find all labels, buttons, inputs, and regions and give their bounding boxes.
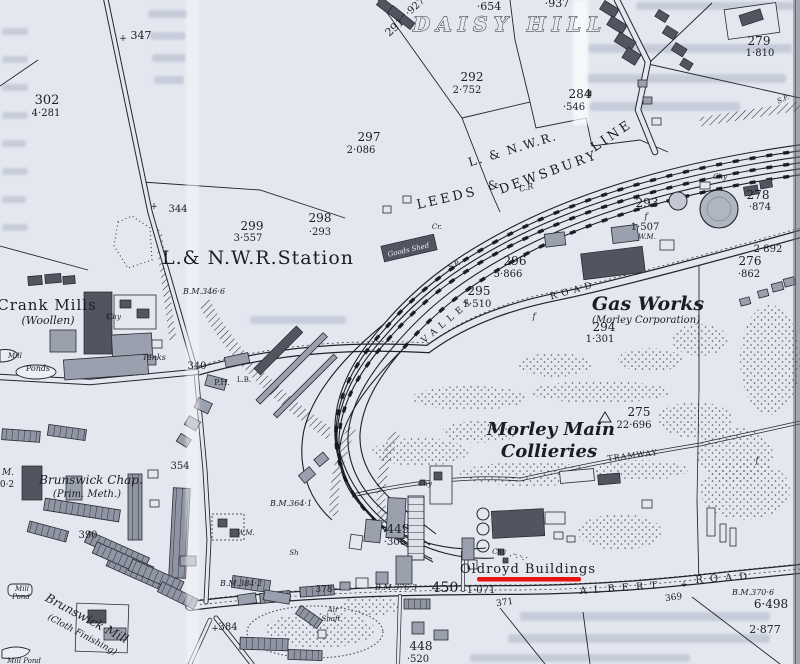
map-geometry bbox=[652, 118, 661, 125]
map-geometry bbox=[590, 102, 740, 111]
map-label: M. bbox=[1, 468, 14, 478]
map-geometry bbox=[560, 469, 595, 484]
map-geometry bbox=[642, 500, 652, 508]
map-label: 292 bbox=[461, 70, 484, 84]
map-label: Shaft bbox=[322, 615, 341, 623]
map-label: L.& N.W.R.Station bbox=[162, 247, 354, 269]
map-geometry bbox=[120, 300, 131, 308]
map-label: Collieries bbox=[501, 441, 597, 462]
map-geometry bbox=[318, 630, 326, 638]
map-label: Chy bbox=[492, 548, 507, 556]
map-geometry bbox=[404, 599, 430, 609]
map-geometry bbox=[408, 496, 424, 560]
map-geometry bbox=[383, 206, 391, 213]
map-geometry bbox=[240, 637, 288, 651]
map-label: ·546 bbox=[563, 102, 585, 113]
map-geometry bbox=[2, 168, 28, 175]
map-label: 1·301 bbox=[586, 334, 615, 345]
red-underline-annotation bbox=[477, 577, 581, 582]
map-label: ·520 bbox=[407, 654, 429, 664]
map-geometry bbox=[148, 470, 158, 478]
map-label: 22·696 bbox=[617, 420, 652, 431]
map-label: ·862 bbox=[738, 269, 760, 280]
map-label: Chy bbox=[418, 480, 433, 488]
map-label: 297 bbox=[358, 130, 381, 144]
map-label: Air bbox=[327, 606, 339, 614]
map-label: Brunswick Chap. bbox=[38, 473, 143, 487]
map-label: ·937 bbox=[545, 0, 570, 10]
map-label: 276 bbox=[739, 254, 762, 268]
map-label: Ponds bbox=[25, 364, 50, 373]
map-geometry bbox=[545, 512, 565, 524]
map-label: 1·810 bbox=[746, 48, 775, 59]
map-label: Cr. bbox=[432, 223, 442, 231]
map-label: Mill bbox=[14, 585, 29, 593]
map-geometry bbox=[152, 54, 186, 62]
map-label: 378 bbox=[315, 585, 332, 595]
map-label: ·874 bbox=[749, 202, 771, 213]
map-label: 279 bbox=[748, 34, 771, 48]
map-label: B.M.376·3 bbox=[374, 583, 417, 592]
map-geometry bbox=[554, 532, 563, 539]
map-label: 275 bbox=[628, 405, 651, 419]
map-geometry bbox=[586, 74, 786, 83]
map-geometry bbox=[434, 630, 448, 640]
map-geometry bbox=[2, 429, 41, 443]
map-label: ·293 bbox=[309, 227, 331, 238]
map-label: 2·752 bbox=[453, 85, 482, 96]
map-label: 293 bbox=[636, 196, 659, 210]
map-geometry bbox=[720, 524, 726, 542]
map-geometry bbox=[412, 622, 424, 634]
map-label: 1·071 bbox=[467, 585, 496, 596]
map-geometry bbox=[218, 519, 227, 527]
map-geometry bbox=[356, 578, 368, 588]
map-geometry bbox=[148, 10, 188, 18]
map-geometry bbox=[45, 273, 62, 283]
map-geometry bbox=[730, 528, 736, 546]
map-label: 340 bbox=[187, 361, 206, 372]
map-label: P.H. bbox=[214, 378, 230, 387]
map-label: Crank Mills bbox=[0, 296, 97, 314]
map-geometry bbox=[707, 508, 715, 536]
map-label: 6·498 bbox=[754, 597, 788, 611]
map-svg: +3473024·281291·927·654·937DAISY HILL279… bbox=[0, 0, 800, 664]
map-geometry bbox=[672, 324, 728, 356]
map-geometry bbox=[186, 0, 199, 664]
map-geometry bbox=[669, 192, 687, 210]
map-geometry bbox=[2, 196, 26, 203]
map-geometry bbox=[63, 275, 76, 284]
map-geometry bbox=[150, 500, 159, 507]
map-geometry bbox=[544, 232, 565, 247]
map-geometry bbox=[2, 224, 28, 231]
map-geometry bbox=[150, 32, 186, 40]
map-geometry bbox=[28, 275, 43, 285]
map-label: 390 bbox=[78, 530, 97, 541]
map-geometry bbox=[530, 381, 670, 403]
map-label: 3·557 bbox=[234, 233, 263, 244]
map-geometry bbox=[643, 97, 652, 104]
map-geometry bbox=[237, 593, 256, 605]
map-label: + bbox=[680, 580, 688, 590]
map-label: 296 bbox=[504, 254, 527, 268]
map-geometry bbox=[700, 182, 710, 189]
map-geometry bbox=[288, 649, 322, 660]
map-label: 449 bbox=[387, 522, 410, 536]
map-geometry bbox=[403, 196, 411, 203]
map-geometry bbox=[364, 519, 382, 543]
map-geometry bbox=[660, 240, 674, 250]
map-geometry bbox=[152, 340, 162, 348]
map-label: 1·507 bbox=[631, 222, 660, 233]
map-geometry bbox=[520, 612, 770, 621]
map-label: (Prim. Meth.) bbox=[53, 489, 121, 500]
map-label: 384 bbox=[218, 622, 237, 633]
map-geometry bbox=[2, 56, 28, 63]
map-label: W.M. bbox=[638, 233, 656, 241]
map-geometry bbox=[2, 28, 28, 35]
map-geometry bbox=[434, 472, 442, 480]
map-label: 450 bbox=[432, 580, 459, 596]
map-geometry bbox=[50, 330, 76, 352]
map-geometry bbox=[2, 84, 28, 91]
map-label: 4·281 bbox=[32, 108, 61, 119]
map-geometry bbox=[2, 112, 28, 119]
map-geometry bbox=[349, 534, 363, 550]
map-geometry bbox=[793, 0, 800, 664]
map-geometry bbox=[598, 473, 621, 485]
map-label: Chy bbox=[107, 313, 122, 321]
map-geometry bbox=[519, 353, 591, 377]
map-geometry bbox=[700, 190, 738, 228]
map-label: 347 bbox=[131, 29, 152, 42]
map-label: 278 bbox=[747, 188, 770, 202]
map-label: + bbox=[119, 34, 127, 44]
map-geometry bbox=[396, 556, 412, 584]
map-label: Morley Main bbox=[486, 419, 615, 440]
map-geometry bbox=[2, 140, 26, 147]
map-label: Sh bbox=[289, 549, 298, 557]
map-label: Pond bbox=[11, 593, 30, 601]
map-label: Tanks bbox=[142, 353, 166, 362]
map-label: Oldroyd Buildings bbox=[460, 562, 596, 577]
map-label: 354 bbox=[170, 461, 189, 472]
map-label: 448 bbox=[410, 639, 433, 653]
map-geometry bbox=[462, 538, 474, 560]
map-label: 298 bbox=[309, 211, 332, 225]
map-label: 5·866 bbox=[494, 269, 523, 280]
map-geometry bbox=[340, 582, 350, 590]
map-label: B.M.364·1 bbox=[269, 499, 312, 508]
map-geometry bbox=[154, 76, 184, 84]
map-geometry bbox=[470, 654, 690, 662]
map-geometry bbox=[618, 348, 682, 372]
map-label: 2·877 bbox=[749, 623, 781, 636]
map-label: W.M. bbox=[237, 529, 255, 537]
map-geometry bbox=[578, 514, 662, 550]
map-label: ·306 bbox=[384, 537, 406, 548]
map-label: Chy bbox=[713, 173, 728, 181]
map-geometry bbox=[137, 309, 149, 318]
map-geometry bbox=[508, 634, 770, 643]
map-geometry bbox=[638, 80, 647, 87]
map-label: 284 bbox=[569, 87, 592, 101]
map-label: Mill Pond bbox=[6, 657, 41, 664]
map-label: 2·086 bbox=[347, 145, 376, 156]
map-geometry bbox=[740, 305, 800, 415]
map-label: Gas Works bbox=[592, 293, 704, 315]
map-geometry bbox=[340, 596, 400, 616]
map-scan: +3473024·281291·927·654·937DAISY HILL279… bbox=[0, 0, 800, 664]
map-label: 302 bbox=[35, 93, 60, 108]
map-label: 0·2 bbox=[0, 480, 14, 490]
map-label: + bbox=[150, 202, 158, 212]
map-geometry bbox=[250, 316, 346, 324]
map-label: Mill bbox=[7, 352, 22, 360]
map-geometry bbox=[412, 386, 528, 410]
map-label: (Woollen) bbox=[21, 314, 74, 327]
map-label: 344 bbox=[168, 204, 187, 215]
map-label: 294 bbox=[593, 320, 616, 334]
map-label: B.M.384·2 bbox=[219, 579, 262, 588]
map-geometry bbox=[567, 536, 575, 542]
map-label: DAISY HILL bbox=[412, 12, 607, 36]
map-geometry bbox=[491, 509, 544, 539]
map-label: B.M.370·6 bbox=[731, 588, 774, 597]
map-label: B.M.346·6 bbox=[182, 287, 225, 296]
map-label: L.B. bbox=[237, 376, 251, 384]
map-label: 299 bbox=[241, 219, 264, 233]
